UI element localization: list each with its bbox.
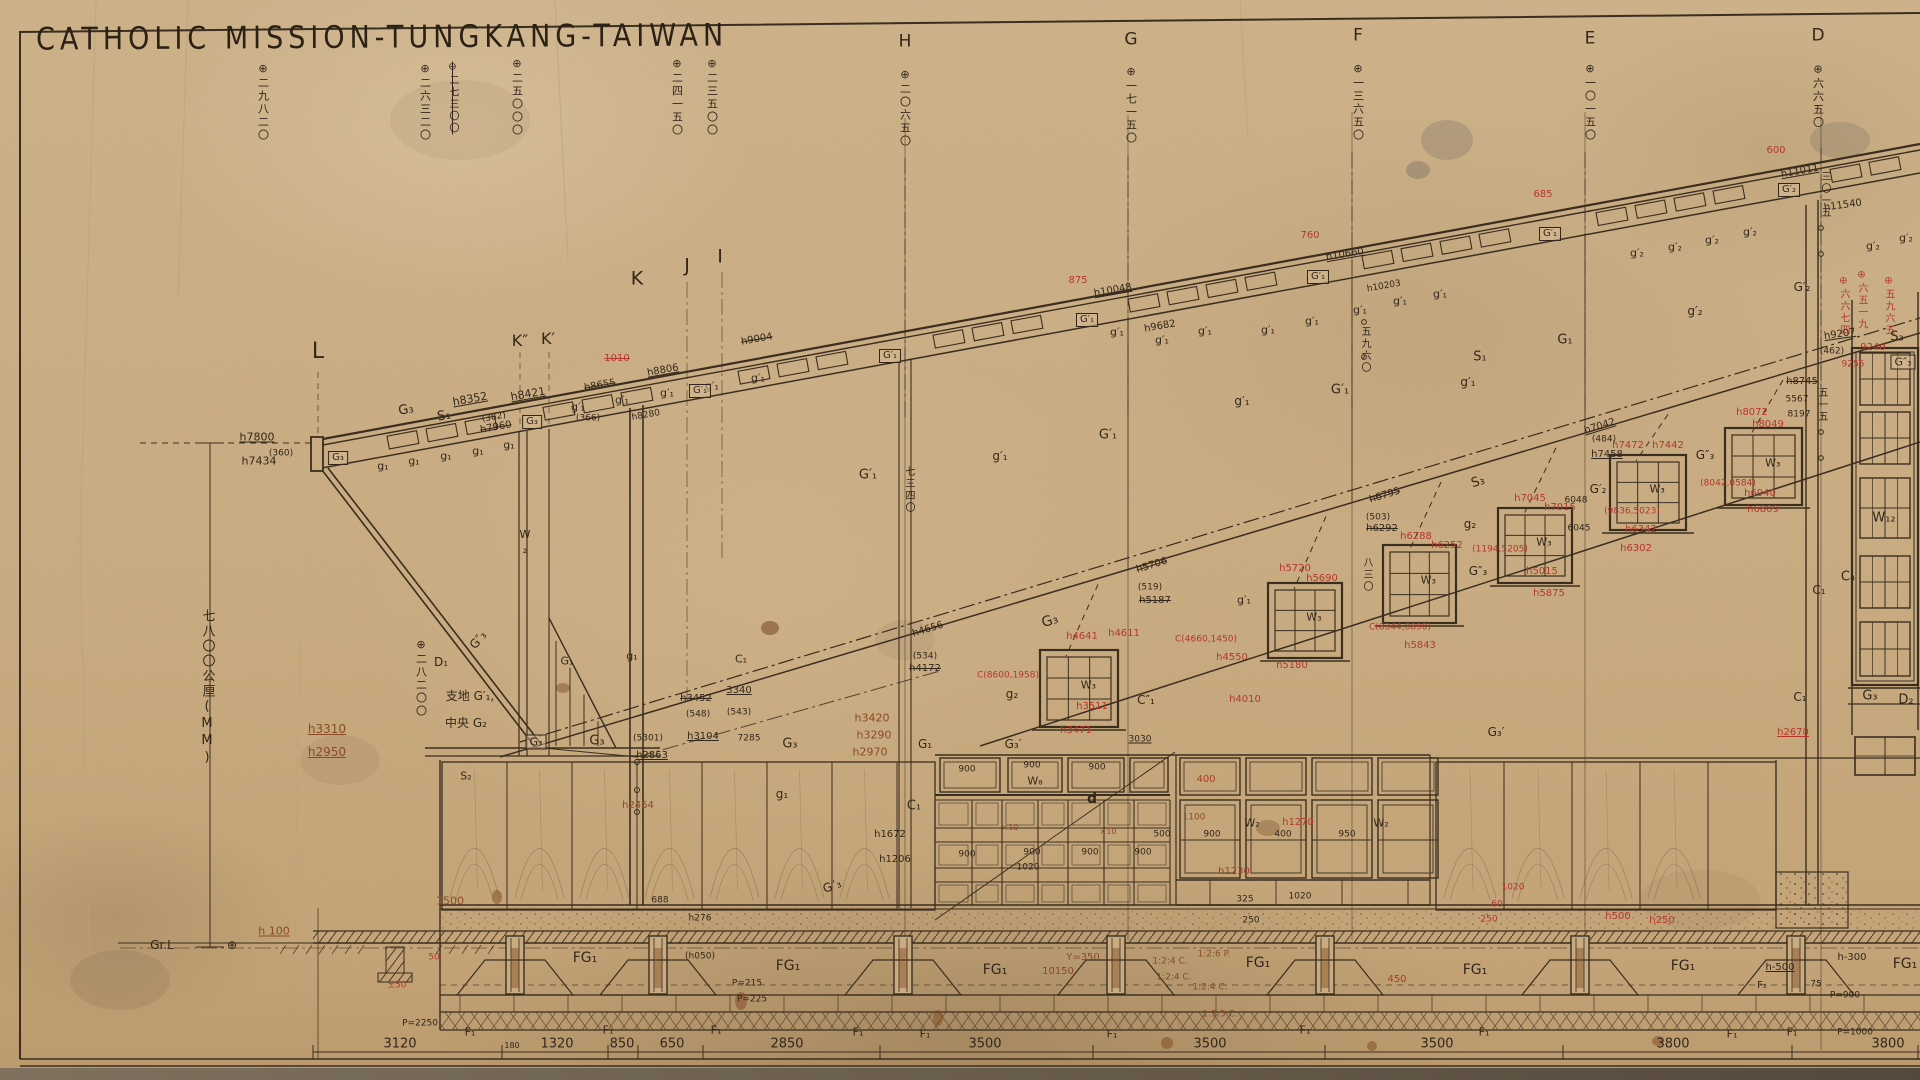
- annotation: E: [1585, 31, 1596, 48]
- annotation: 三〇一五: [1819, 171, 1829, 219]
- annotation: h5015: [1526, 567, 1558, 577]
- annotation: h9682: [1143, 319, 1176, 334]
- window-label: W₃: [1421, 575, 1436, 586]
- annotation: h2863: [636, 751, 668, 761]
- annotation: h7045: [1514, 494, 1546, 504]
- annotation: 875: [1068, 276, 1087, 286]
- dimension-value: 3500: [1420, 1038, 1453, 1051]
- beam-girder-tag: G′₁: [1539, 227, 1561, 241]
- annotation: h5187: [1139, 596, 1171, 606]
- annotation: (503): [1366, 514, 1390, 523]
- annotation: H: [899, 34, 912, 51]
- annotation: h6302: [1620, 544, 1652, 554]
- annotation: F₁: [853, 1027, 864, 1038]
- annotation: g′₁: [660, 388, 674, 399]
- annotation: ⊕五九六五: [1883, 276, 1893, 337]
- annotation: h11011: [1780, 164, 1819, 180]
- annotation: P=900: [1830, 992, 1860, 1001]
- annotation: G″₃: [1696, 449, 1715, 461]
- annotation: 75: [1810, 981, 1821, 990]
- annotation: 950: [1338, 831, 1355, 840]
- beam-girder-tag: G₃: [522, 415, 542, 429]
- annotation: F₁: [1479, 1027, 1490, 1038]
- annotation: (5301): [633, 735, 663, 744]
- annotation: h500: [1605, 912, 1630, 922]
- annotation: ⊕: [227, 939, 237, 951]
- annotation: g₁: [440, 451, 451, 462]
- annotation: h 100: [258, 926, 289, 937]
- annotation: I: [717, 248, 723, 267]
- annotation: g′₁: [1237, 595, 1251, 606]
- annotation: 250: [1480, 916, 1497, 925]
- annotation: h3104: [687, 732, 719, 742]
- annotation: 900: [1081, 849, 1098, 858]
- annotation: ⊕二八二〇〇: [416, 638, 427, 718]
- annotation: W₂: [1244, 818, 1259, 829]
- annotation: 900: [958, 766, 975, 775]
- annotation: G′₁: [1331, 384, 1349, 397]
- annotation: g′₁: [1433, 289, 1447, 300]
- annotation: h4641: [1066, 632, 1098, 642]
- annotation: 500: [1153, 831, 1170, 840]
- annotation: 1:2:4 C.: [1156, 974, 1191, 983]
- annotation: K′: [541, 331, 555, 347]
- annotation: h8745: [1786, 377, 1818, 387]
- annotation: G₃: [1040, 612, 1060, 630]
- annotation: 五一五: [1816, 387, 1826, 423]
- annotation: G: [1124, 32, 1137, 49]
- annotation: 1100: [1183, 814, 1206, 823]
- annotation: (1194,5205): [1472, 546, 1528, 555]
- annotation: h1672: [874, 830, 906, 840]
- annotation: P=225: [737, 996, 767, 1005]
- annotation: h6342: [1625, 525, 1657, 535]
- annotation: (543): [727, 709, 751, 718]
- annotation: g′₂: [1668, 242, 1682, 253]
- annotation: 1010: [604, 354, 629, 364]
- annotation: 688: [651, 897, 668, 906]
- blueprint-sheet: HGFEDLK″K′KJI⊕二九八二〇⊕二六三二〇⊕二七三〇〇⊕二五〇〇〇⊕二四…: [0, 0, 1920, 1080]
- annotation: g₁: [377, 461, 388, 472]
- annotation: h5180: [1276, 661, 1308, 671]
- annotation: W₂: [1373, 818, 1388, 829]
- annotation: P=1000: [1837, 1029, 1873, 1038]
- dimension-value: 650: [660, 1038, 685, 1051]
- annotation: 3030: [1129, 736, 1152, 745]
- annotation: G′₁: [859, 469, 877, 482]
- annotation: g′₂: [1899, 233, 1913, 244]
- annotation: G₃: [782, 738, 797, 751]
- annotation: Gr.L: [150, 939, 174, 951]
- window-label: W₃: [1765, 457, 1780, 468]
- annotation: g′₁: [1155, 335, 1169, 346]
- annotation: G₃: [589, 735, 604, 748]
- annotation: g₁: [776, 788, 788, 800]
- beam-girder-tag: G′₁: [879, 349, 901, 363]
- annotation: 1:3:5 C.: [1202, 1011, 1237, 1020]
- annotation: 180: [504, 1042, 519, 1050]
- annotation: h5875: [1533, 589, 1565, 599]
- annotation: S₁: [1473, 351, 1486, 364]
- annotation: g′₁: [615, 395, 629, 406]
- annotation: h7800: [240, 432, 275, 443]
- annotation: W₂: [520, 528, 531, 558]
- annotation: S₂: [460, 771, 471, 782]
- annotation: G₁: [918, 738, 932, 750]
- dimension-value: 3120: [383, 1038, 416, 1051]
- annotation: 五九六〇: [1359, 326, 1369, 374]
- annotation: 8197: [1788, 411, 1811, 420]
- annotation: S₃: [1470, 474, 1487, 490]
- annotation: D₂: [1898, 694, 1913, 707]
- annotation: G₃: [1862, 690, 1877, 703]
- annotation: h250: [1649, 916, 1674, 926]
- annotation: FG₁: [573, 951, 598, 965]
- annotation: h6795: [1368, 487, 1401, 506]
- annotation: (548): [686, 711, 710, 720]
- annotation: C(4660,1450): [1175, 636, 1237, 645]
- annotation: F₁: [1727, 1029, 1738, 1040]
- annotation: ⊕一〇一五〇: [1585, 62, 1596, 142]
- annotation: h4172: [909, 664, 941, 674]
- annotation: 325: [1236, 896, 1253, 905]
- annotation: h9207: [1824, 328, 1857, 342]
- annotation: C₁: [1793, 691, 1806, 703]
- annotation: G₁: [561, 656, 574, 667]
- annotation: ⊕一三六五〇: [1353, 62, 1364, 142]
- annotation: C″₁: [1137, 694, 1155, 706]
- annotation: h4656: [911, 621, 944, 640]
- annotation: ±50: [388, 982, 407, 991]
- annotation: g′₂: [1866, 241, 1880, 252]
- annotation: 7285: [738, 735, 761, 744]
- annotation: 3340: [726, 686, 751, 696]
- annotation: 900: [1134, 849, 1151, 858]
- window-label: W₃: [1536, 536, 1551, 547]
- annotation: h7458: [1591, 450, 1623, 460]
- annotation: h8655: [583, 378, 616, 393]
- annotation: G₃′: [1005, 738, 1022, 750]
- annotation: 10150: [1042, 967, 1074, 977]
- annotation: C(8344,0890): [1369, 624, 1431, 633]
- annotation: C(8600,1958): [977, 672, 1039, 681]
- annotation: 1:2:6 P.: [1198, 951, 1231, 960]
- annotation: h4010: [1229, 695, 1261, 705]
- annotation: h5843: [1404, 641, 1436, 651]
- annotation: g′₂: [1687, 305, 1702, 317]
- annotation: FG₁: [1893, 957, 1918, 971]
- annotation: h8352: [452, 391, 488, 408]
- annotation: K″: [512, 333, 528, 349]
- annotation: h276: [689, 915, 712, 924]
- annotation: h8280: [631, 409, 661, 423]
- annotation: F₂: [1757, 981, 1767, 991]
- annotation: g′₁: [1305, 316, 1319, 327]
- annotation: h6940: [1744, 489, 1776, 499]
- dimension-value: 3500: [1193, 1038, 1226, 1051]
- annotation: (366): [576, 415, 600, 424]
- annotation: h9004: [740, 332, 773, 347]
- annotation: g′₁: [1198, 326, 1212, 337]
- annotation: G′₂: [1794, 281, 1811, 293]
- annotation: ⊕二七三〇〇: [447, 62, 457, 135]
- annotation: ⊕六六五〇: [1813, 63, 1824, 130]
- annotation: 685: [1533, 190, 1552, 200]
- annotation: 6045: [1568, 525, 1591, 534]
- annotation: F₁: [1300, 1025, 1311, 1036]
- annotation: h2970: [853, 747, 888, 758]
- dimension-value: 2850: [770, 1038, 803, 1051]
- annotation: G₁: [1557, 334, 1572, 347]
- annotation: ⊕二九八二〇: [258, 62, 269, 142]
- annotation: h-300: [1837, 953, 1866, 963]
- annotation: h3471: [1060, 726, 1092, 736]
- annotation: 900: [1023, 849, 1040, 858]
- annotation: J: [684, 257, 690, 276]
- annotation: g′₁: [1261, 325, 1275, 336]
- annotation: FG₁: [776, 959, 801, 973]
- dimension-value: 1320: [540, 1038, 573, 1051]
- dimension-value: 3500: [968, 1038, 1001, 1051]
- annotation: g₁: [472, 446, 483, 457]
- annotation: h7434: [242, 456, 277, 467]
- annotation: F₁: [465, 1027, 476, 1038]
- annotation: F₁: [1107, 1029, 1118, 1040]
- dimension-value: 3800: [1871, 1038, 1904, 1051]
- annotation: h4550: [1216, 653, 1248, 663]
- annotation: G₃: [526, 735, 547, 750]
- annotation: 1020: [1289, 893, 1312, 902]
- annotation: (534): [913, 653, 937, 662]
- annotation: h2670: [1777, 728, 1809, 738]
- annotation: h6292: [1366, 524, 1398, 534]
- annotation: ⊕一七一五〇: [1126, 65, 1137, 145]
- annotation: g′₁: [751, 373, 765, 384]
- annotation: ⊕二三五〇〇: [707, 57, 718, 137]
- annotation: h6809: [1747, 505, 1779, 515]
- annotation: 1:2:4 C.: [1192, 984, 1227, 993]
- annotation: (9836,5023): [1604, 508, 1660, 517]
- annotation: g′₁: [1353, 305, 1367, 316]
- annotation: G′₁: [1099, 429, 1117, 442]
- annotation: ×10: [1100, 828, 1117, 836]
- annotation: h8049: [1752, 420, 1784, 430]
- annotation: FG₁: [983, 963, 1008, 977]
- annotation: FG₁: [1671, 959, 1696, 973]
- annotation: h3290: [857, 730, 892, 741]
- annotation: h10048: [1093, 283, 1132, 299]
- annotation: g₁: [626, 651, 637, 662]
- annotation: 1020: [1017, 864, 1040, 873]
- annotation: C₁: [1812, 584, 1825, 596]
- annotation: D: [1811, 28, 1824, 45]
- annotation: 400: [1274, 831, 1291, 840]
- annotation: F₁: [1787, 1027, 1798, 1038]
- annotation: h2950: [308, 746, 346, 758]
- annotation: 50: [428, 954, 439, 963]
- annotation: h3452: [680, 694, 712, 704]
- annotation: L: [312, 341, 324, 363]
- annotation: ×10: [1002, 824, 1019, 832]
- annotation: ⊕二四一五〇: [672, 57, 683, 137]
- annotation: 760: [1300, 231, 1319, 241]
- dimension-value: 3800: [1656, 1038, 1689, 1051]
- drawing-title: CATHOLIC MISSION-TUNGKANG-TAIWAN: [36, 18, 728, 58]
- window-label: W₃: [1649, 483, 1664, 494]
- dimension-value: 850: [610, 1038, 635, 1051]
- annotation: F₁: [603, 1025, 614, 1036]
- window-label: W₃: [1081, 679, 1096, 690]
- annotation: 9255: [1842, 361, 1865, 370]
- annotation: g₁: [503, 440, 514, 451]
- annotation: 9240: [1860, 343, 1885, 353]
- annotation: h7442: [1652, 441, 1684, 451]
- annotation: F₁: [920, 1029, 931, 1040]
- annotation: 七三四〇: [903, 466, 913, 514]
- annotation: h6252: [1431, 541, 1463, 551]
- annotation: g′₂: [1705, 235, 1719, 246]
- annotation: h3310: [308, 723, 346, 735]
- annotation: h5690: [1306, 574, 1338, 584]
- annotation: G″₃: [467, 629, 488, 651]
- annotation: W₁₂: [1872, 512, 1895, 525]
- annotation: G₃′: [1488, 726, 1505, 738]
- annotation: g′₁: [1234, 395, 1249, 407]
- annotation: h7472: [1612, 441, 1644, 451]
- beam-girder-tag: G′₂: [1778, 183, 1800, 197]
- annotation: ⊕二五〇〇〇: [512, 57, 523, 137]
- annotation: G₃: [397, 402, 414, 417]
- annotation: h-500: [1765, 963, 1794, 973]
- annotation: h10660: [1325, 247, 1364, 263]
- annotation: (h050): [685, 953, 715, 962]
- annotation: D₁: [434, 656, 448, 668]
- annotation: 900: [958, 851, 975, 860]
- annotation: P=215: [732, 980, 762, 989]
- annotation: ⊕六五一九: [1856, 270, 1866, 331]
- beam-girder-tag: G′₁: [1307, 270, 1329, 284]
- sheet-edge-shadow: [0, 1068, 1920, 1080]
- beam-girder-tag: G′₁: [1076, 313, 1098, 327]
- annotation: G″₃: [821, 877, 843, 895]
- annotation: g′₂: [1743, 227, 1757, 238]
- annotation: C₁: [907, 800, 921, 813]
- left-dimension-label: 七八〇〇公厘(MM): [201, 609, 214, 767]
- beam-girder-tag: G′₁: [689, 384, 711, 398]
- annotation: 支地 G′₁,: [446, 690, 494, 702]
- annotation: F₁: [711, 1025, 722, 1036]
- annotation: g₂: [1006, 688, 1018, 700]
- annotation: g′₁: [1110, 327, 1124, 338]
- annotation: h5706: [1135, 557, 1168, 576]
- annotation: G″₃: [1890, 355, 1915, 370]
- annotation: 900: [1203, 831, 1220, 840]
- annotation: W₈: [1027, 776, 1042, 787]
- annotation: 900: [1088, 764, 1105, 773]
- annotation: h1270: [1282, 818, 1314, 828]
- annotation: (519): [1138, 584, 1162, 593]
- annotation: h8806: [646, 363, 679, 378]
- annotation: h6288: [1400, 532, 1432, 542]
- annotation: 400: [1196, 775, 1215, 785]
- annotation: g₂: [1464, 518, 1476, 530]
- annotation: g′₁: [1460, 376, 1475, 388]
- annotation: 900: [1023, 762, 1040, 771]
- annotation: h2464: [622, 801, 654, 811]
- annotation: ⊕二〇六五〇: [900, 68, 911, 148]
- annotation: h1206: [879, 855, 911, 865]
- annotation: 6048: [1565, 497, 1588, 506]
- annotation: d: [1087, 792, 1097, 806]
- annotation: G″₃: [1469, 565, 1488, 577]
- annotation: g′₂: [1630, 248, 1644, 259]
- annotation: G′₂: [1590, 483, 1607, 495]
- annotation: (462): [1820, 348, 1844, 357]
- annotation: h1230: [1218, 867, 1250, 877]
- annotation: g′₁: [571, 402, 585, 413]
- annotation: 60: [1491, 901, 1502, 910]
- annotation: S₃: [1890, 331, 1903, 344]
- annotation: C₁: [735, 654, 747, 665]
- annotation: h3420: [855, 713, 890, 724]
- beam-girder-tag: G₃: [328, 451, 348, 465]
- annotation: FG₁: [1246, 956, 1271, 970]
- annotation: 1500: [436, 896, 464, 907]
- annotation: g′₁: [992, 450, 1007, 462]
- annotation: K: [631, 270, 643, 289]
- annotation: 1020: [1502, 884, 1525, 893]
- annotation: 中央 G₂: [445, 717, 487, 729]
- annotation: h10203: [1366, 280, 1401, 295]
- annotation-layer: HGFEDLK″K′KJI⊕二九八二〇⊕二六三二〇⊕二七三〇〇⊕二五〇〇〇⊕二四…: [0, 0, 1920, 1080]
- annotation: h4611: [1108, 629, 1140, 639]
- annotation: P=2250: [402, 1020, 438, 1029]
- annotation: g′₁: [1393, 296, 1407, 307]
- annotation: h8421: [510, 386, 546, 403]
- annotation: g₁: [408, 456, 419, 467]
- annotation: F: [1353, 28, 1363, 45]
- annotation: ⊕二六三二〇: [420, 62, 431, 142]
- annotation: FG₁: [1463, 963, 1488, 977]
- annotation: C₄: [1841, 571, 1855, 584]
- annotation: 250: [1242, 917, 1259, 926]
- annotation: 5567: [1786, 396, 1809, 405]
- annotation: 600: [1766, 146, 1785, 156]
- annotation: Y=350: [1066, 953, 1100, 963]
- annotation: h8072: [1736, 408, 1768, 418]
- annotation: 1:2:4 C.: [1152, 958, 1187, 967]
- annotation: 八三〇: [1361, 557, 1371, 593]
- annotation: 450: [1387, 975, 1406, 985]
- annotation: S₁: [436, 408, 452, 423]
- annotation: h3511: [1076, 702, 1108, 712]
- window-label: W₃: [1306, 611, 1321, 622]
